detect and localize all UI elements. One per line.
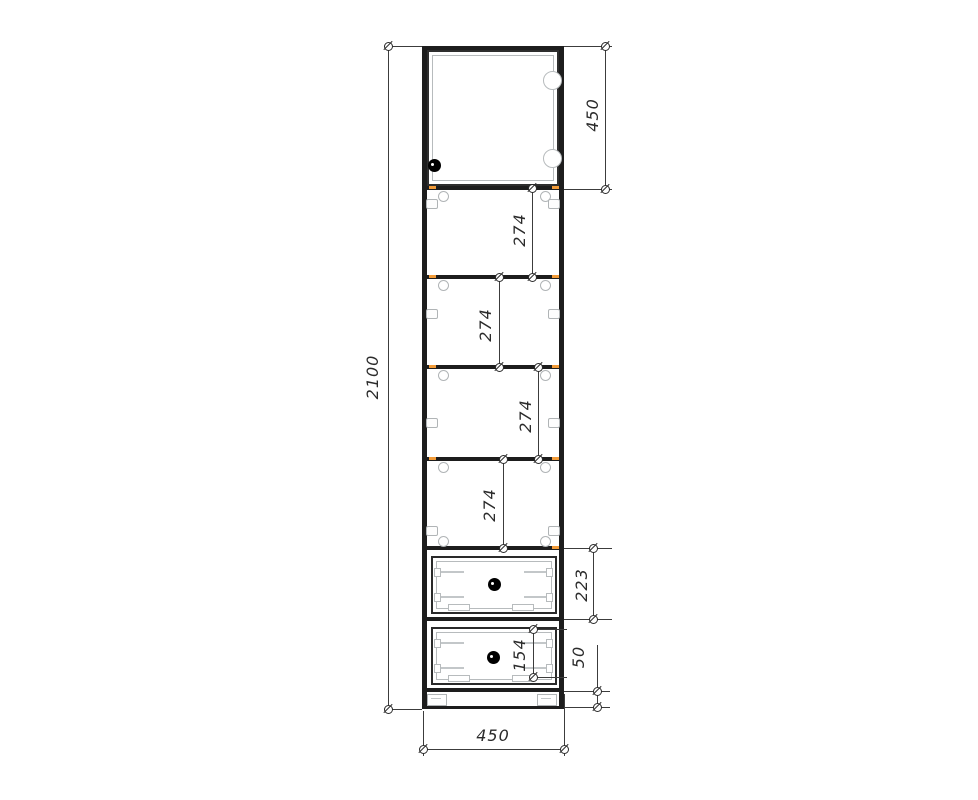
dim-label-shelf-gap-3: 274: [517, 386, 535, 446]
cam-fitting-icon: [438, 462, 449, 473]
dimension-line: [538, 367, 539, 459]
dimension-line: [388, 46, 389, 709]
drawer-slide-hardware: [448, 604, 470, 611]
drawer-divider-line: [424, 617, 560, 621]
drawer-2-knob-icon: [487, 651, 500, 664]
rail-bracket-icon: [434, 568, 441, 577]
shelf-edge-accent: [429, 186, 436, 189]
shelf-pin-icon: [426, 526, 438, 536]
dim-terminator-icon: [589, 544, 598, 553]
dim-terminator-icon: [589, 615, 598, 624]
dim-terminator-icon: [384, 705, 393, 714]
shelf-edge-accent: [429, 275, 436, 278]
dimension-line: [593, 548, 594, 619]
shelf-edge-accent: [552, 546, 559, 549]
dim-terminator-icon: [593, 703, 602, 712]
cam-fitting-icon: [438, 280, 449, 291]
door-inner-edge: [432, 55, 554, 181]
extension-line: [564, 548, 612, 549]
extension-line: [564, 691, 610, 692]
cam-fitting-icon: [438, 536, 449, 547]
rail-bracket-icon: [546, 639, 553, 648]
hinge-icon: [543, 71, 562, 90]
hinge-icon: [543, 149, 562, 168]
cam-fitting-icon: [540, 462, 551, 473]
dimension-line: [532, 188, 533, 277]
shelf-edge-accent: [429, 365, 436, 368]
adjustable-foot-icon: [427, 694, 447, 706]
dim-terminator-icon: [528, 184, 537, 193]
dim-terminator-icon: [529, 673, 538, 682]
dim-terminator-icon: [529, 625, 538, 634]
extension-line: [564, 619, 612, 620]
dimension-line: [533, 629, 534, 677]
dim-terminator-icon: [534, 455, 543, 464]
dim-terminator-icon: [528, 273, 537, 282]
dim-terminator-icon: [499, 544, 508, 553]
shelf-line-1: [424, 186, 560, 190]
shelf-pin-icon: [548, 418, 560, 428]
technical-drawing: 2100 450 274 274 274 274: [0, 0, 978, 800]
dim-label-overall-width: 450: [463, 727, 523, 745]
rail-bracket-icon: [434, 639, 441, 648]
plinth-bottom-line: [422, 706, 564, 709]
rail-bracket-icon: [546, 593, 553, 602]
shelf-pin-icon: [548, 309, 560, 319]
dim-label-plinth: 50: [570, 627, 588, 687]
shelf-line-2: [424, 275, 560, 279]
dim-label-overall-height: 2100: [364, 347, 382, 407]
door-panel: [427, 50, 559, 186]
cam-fitting-icon: [438, 191, 449, 202]
drawer-slide-rail: [438, 667, 464, 669]
dim-terminator-icon: [495, 363, 504, 372]
drawer-slide-hardware: [512, 604, 534, 611]
dim-label-drawer2-inner: 154: [511, 625, 529, 685]
adjustable-foot-icon: [537, 694, 557, 706]
shelf-edge-accent: [429, 457, 436, 460]
shelf-pin-icon: [426, 418, 438, 428]
drawer-slide-rail: [438, 571, 464, 573]
shelf-pin-icon: [548, 526, 560, 536]
dim-terminator-icon: [560, 745, 569, 754]
dim-label-shelf-gap-1: 274: [511, 200, 529, 260]
cam-fitting-icon: [540, 370, 551, 381]
dim-label-shelf-gap-4: 274: [481, 475, 499, 535]
dim-label-shelf-gap-2: 274: [477, 295, 495, 355]
right-side-panel: [559, 46, 564, 709]
cam-fitting-icon: [540, 536, 551, 547]
rail-bracket-icon: [546, 568, 553, 577]
dim-terminator-icon: [419, 745, 428, 754]
cam-fitting-icon: [438, 370, 449, 381]
dim-label-drawer1: 223: [573, 555, 591, 615]
drawer-slide-rail: [438, 596, 464, 598]
dim-terminator-icon: [499, 455, 508, 464]
drawer-slide-rail: [438, 642, 464, 644]
shelf-pin-icon: [548, 199, 560, 209]
extension-line: [564, 707, 610, 708]
shelf-edge-accent: [552, 186, 559, 189]
extension-line: [533, 629, 567, 630]
bottom-panel-line: [424, 688, 560, 692]
shelf-edge-accent: [552, 275, 559, 278]
dimension-line: [597, 645, 598, 707]
dim-terminator-icon: [384, 42, 393, 51]
shelf-pin-icon: [426, 309, 438, 319]
shelf-edge-accent: [552, 457, 559, 460]
dim-terminator-icon: [601, 185, 610, 194]
dim-terminator-icon: [495, 273, 504, 282]
dim-terminator-icon: [601, 42, 610, 51]
shelf-pin-icon: [426, 199, 438, 209]
extension-line: [533, 677, 567, 678]
rail-bracket-icon: [434, 593, 441, 602]
shelf-edge-accent: [552, 365, 559, 368]
dimension-line: [499, 277, 500, 367]
cam-fitting-icon: [540, 280, 551, 291]
drawer-slide-hardware: [448, 675, 470, 682]
dim-terminator-icon: [534, 363, 543, 372]
drawer-1-knob-icon: [488, 578, 501, 591]
dim-label-top-section: 450: [584, 85, 602, 145]
dimension-line: [503, 459, 504, 548]
door-knob-icon: [428, 159, 441, 172]
dimension-line: [423, 749, 564, 750]
dimension-line: [605, 46, 606, 189]
rail-bracket-icon: [546, 664, 553, 673]
rail-bracket-icon: [434, 664, 441, 673]
dim-terminator-icon: [593, 687, 602, 696]
